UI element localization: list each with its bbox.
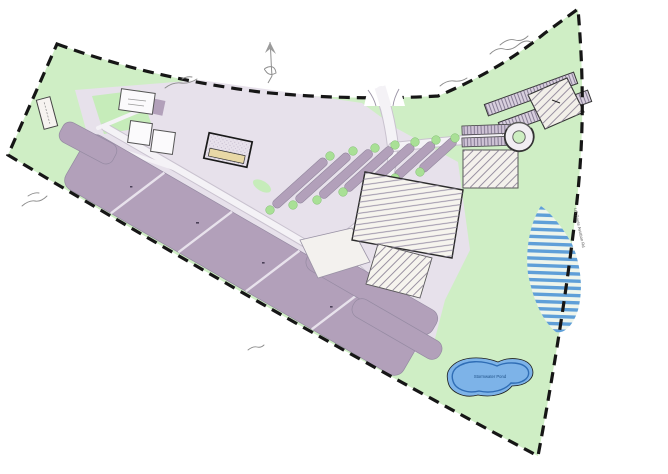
tree-icon bbox=[391, 141, 400, 150]
tree-icon bbox=[416, 168, 425, 177]
speck bbox=[330, 306, 333, 308]
tree-icon bbox=[266, 206, 275, 215]
tree-icon bbox=[313, 196, 322, 205]
north-arrow-icon bbox=[264, 42, 276, 83]
tree-icon bbox=[326, 152, 335, 161]
east-hatched-pad bbox=[463, 150, 518, 188]
entrance-gap bbox=[364, 87, 405, 107]
tree-icon bbox=[432, 136, 441, 145]
pond-label: Stormwater Pond bbox=[474, 374, 507, 379]
building-nw-1 bbox=[119, 89, 156, 115]
handwritten-note bbox=[22, 193, 47, 206]
east-hatched-pad-hatch bbox=[463, 150, 518, 188]
site-plan-page: Stormwater Pond US Route Aviation Rd bbox=[0, 0, 668, 474]
roundabout-island bbox=[513, 131, 525, 143]
right-road-label: US Route Aviation Rd bbox=[573, 207, 586, 248]
building-nw-3 bbox=[151, 130, 176, 155]
site-plan-drawing: Stormwater Pond US Route Aviation Rd bbox=[0, 0, 668, 474]
tree-icon bbox=[411, 138, 420, 147]
speck bbox=[130, 186, 132, 188]
speck bbox=[262, 262, 265, 264]
tree-icon bbox=[371, 144, 380, 153]
speck bbox=[196, 222, 199, 224]
tree-icon bbox=[289, 201, 298, 210]
tree-icon bbox=[349, 147, 358, 156]
roundabout bbox=[505, 123, 534, 152]
entrance-gap-road bbox=[380, 87, 386, 107]
building-nw-2 bbox=[128, 121, 153, 146]
handwritten-note bbox=[248, 345, 264, 350]
tree-icon bbox=[451, 134, 460, 143]
north-arrow-base-scribble bbox=[264, 67, 276, 83]
tree-icon bbox=[339, 188, 348, 197]
